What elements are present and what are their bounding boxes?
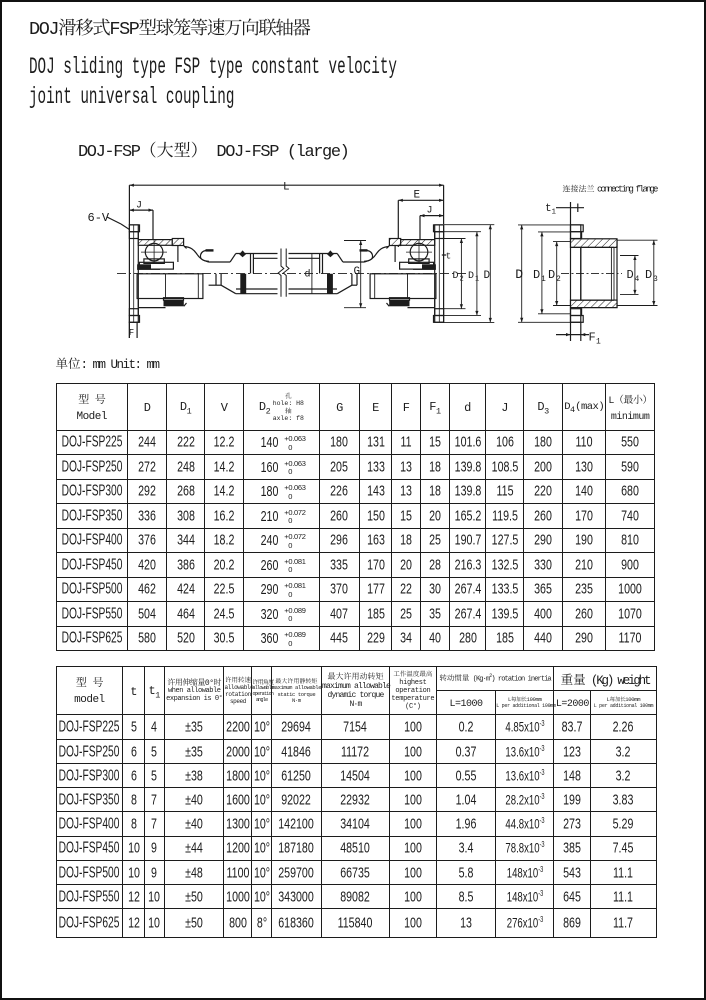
svg-text:L: L (283, 178, 290, 194)
svg-text:1: 1 (541, 273, 546, 284)
svg-text:连接法兰: 连接法兰 (563, 184, 595, 195)
svg-text:D: D (515, 263, 523, 282)
svg-text:D: D (627, 265, 634, 282)
svg-text:D: D (484, 266, 491, 282)
svg-text:D: D (468, 266, 474, 281)
svg-text:1: 1 (475, 274, 479, 284)
svg-text:G: G (354, 262, 361, 278)
svg-text:2: 2 (556, 273, 561, 284)
svg-text:connecting flange: connecting flange (597, 182, 658, 195)
svg-text:1: 1 (596, 336, 601, 347)
svg-text:D: D (548, 265, 555, 282)
svg-text:1: 1 (552, 206, 557, 217)
svg-text:E: E (414, 186, 421, 202)
svg-text:t: t (446, 249, 451, 262)
svg-text:3: 3 (653, 273, 658, 284)
svg-text:D: D (533, 265, 540, 282)
svg-text:J: J (136, 196, 142, 211)
svg-text:F: F (589, 328, 596, 345)
svg-text:D: D (453, 266, 459, 281)
svg-text:d: d (305, 265, 311, 280)
svg-text:4: 4 (635, 273, 640, 284)
svg-text:D: D (645, 265, 652, 282)
svg-text:2: 2 (460, 274, 464, 284)
svg-text:6-V: 6-V (88, 208, 110, 225)
svg-text:J: J (427, 201, 433, 216)
